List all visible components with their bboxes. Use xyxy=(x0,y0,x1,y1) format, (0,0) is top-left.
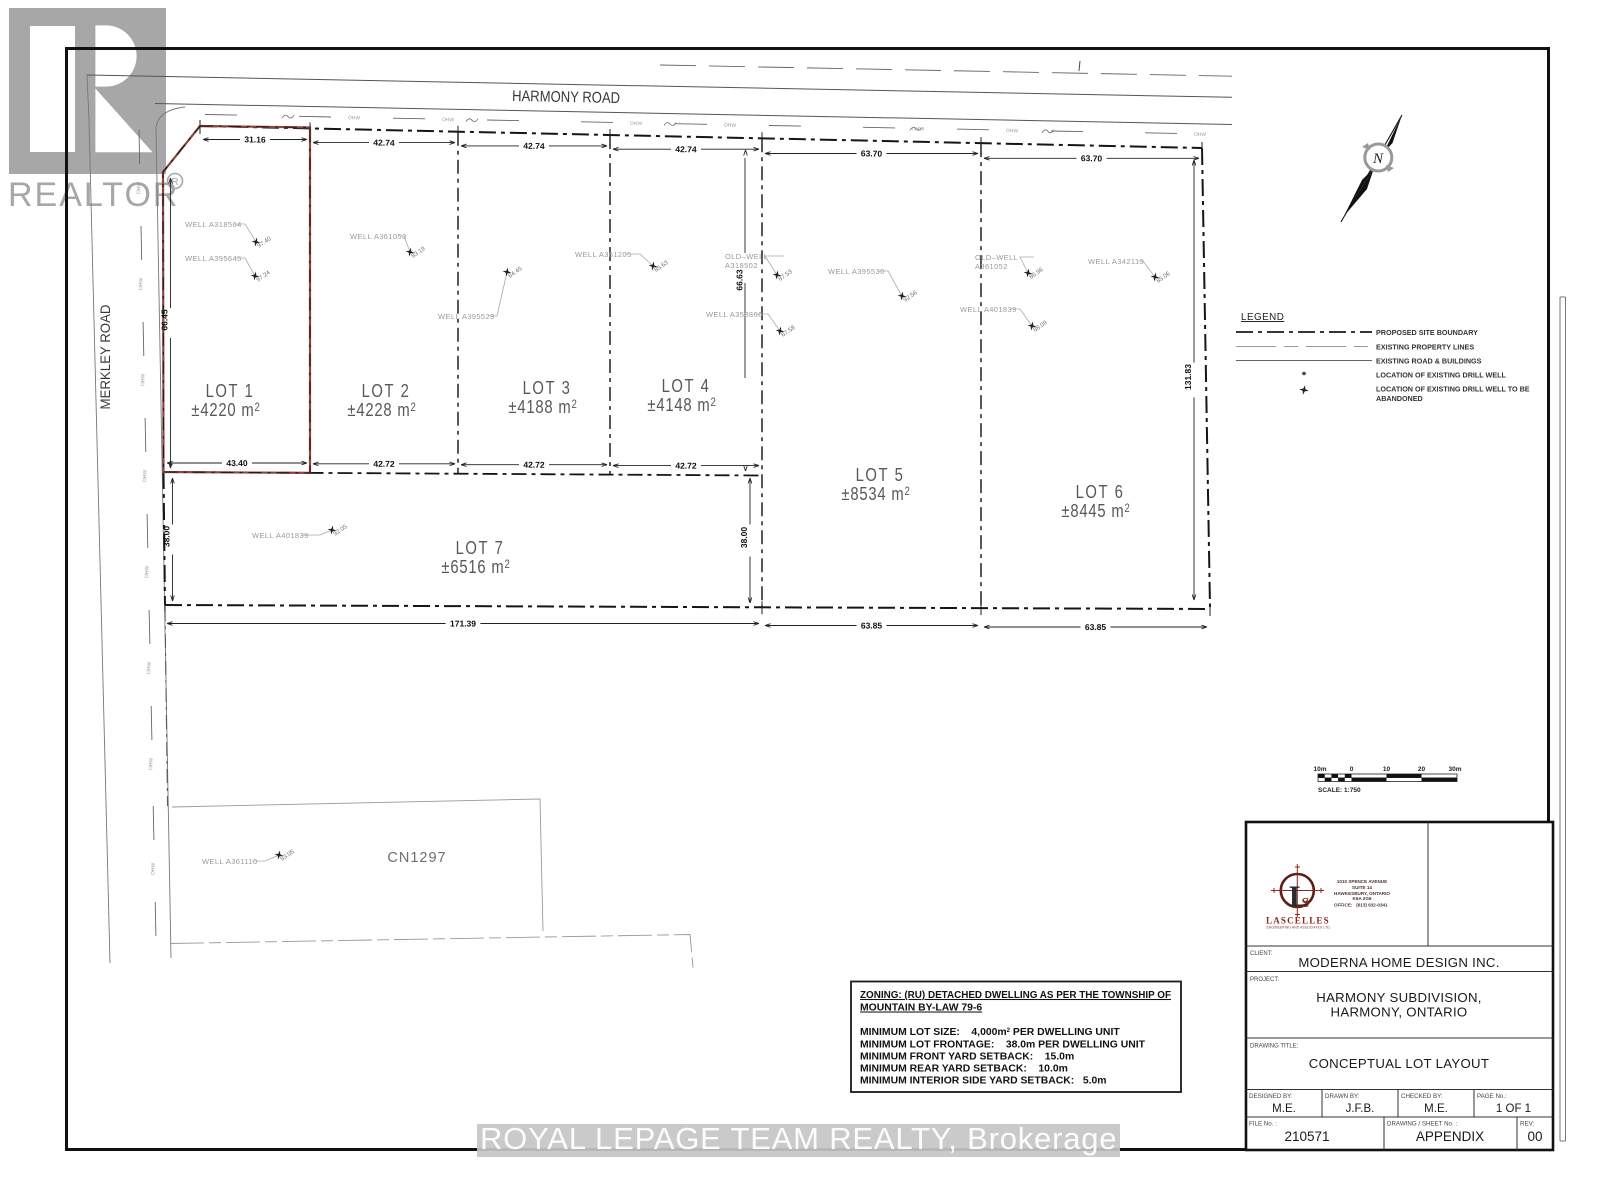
svg-text:WELL A395645: WELL A395645 xyxy=(185,254,242,263)
svg-text:LOT 5: LOT 5 xyxy=(856,464,905,485)
svg-text:EXISTING ROAD & BUILDINGS: EXISTING ROAD & BUILDINGS xyxy=(1376,357,1482,366)
svg-text:WELL A358866: WELL A358866 xyxy=(706,310,763,319)
svg-text:APPENDIX: APPENDIX xyxy=(1416,1129,1484,1144)
svg-text:WELL A318564: WELL A318564 xyxy=(185,220,242,229)
svg-text:REV:: REV: xyxy=(1520,1121,1534,1128)
svg-text:31.16: 31.16 xyxy=(244,134,266,144)
svg-text:±4220 m2: ±4220 m2 xyxy=(191,399,260,420)
svg-text:OHW: OHW xyxy=(442,117,455,123)
svg-text:N: N xyxy=(1372,151,1384,167)
svg-text:WELL A342113: WELL A342113 xyxy=(1088,257,1144,266)
svg-text:00: 00 xyxy=(1527,1129,1542,1144)
svg-text:OHW: OHW xyxy=(1006,128,1019,134)
svg-text:S: S xyxy=(1302,896,1310,911)
svg-text:HARMONY ROAD: HARMONY ROAD xyxy=(512,88,620,107)
svg-text:ZONING: (RU) DETACHED DWELLING: ZONING: (RU) DETACHED DWELLING AS PER TH… xyxy=(860,990,1171,1001)
svg-text:M.E.: M.E. xyxy=(1272,1103,1296,1115)
svg-text:HARMONY, ONTARIO: HARMONY, ONTARIO xyxy=(1331,1005,1468,1020)
svg-text:±8534 m2: ±8534 m2 xyxy=(841,483,910,504)
svg-text:±4188 m2: ±4188 m2 xyxy=(508,396,577,417)
svg-text:OHW: OHW xyxy=(148,757,154,770)
svg-text:DRAWN BY:: DRAWN BY: xyxy=(1325,1093,1360,1100)
svg-text:±4228 m2: ±4228 m2 xyxy=(347,399,416,420)
svg-text:MERKLEY ROAD: MERKLEY ROAD xyxy=(98,304,113,409)
svg-text:DRAWING / SHEET No. :: DRAWING / SHEET No. : xyxy=(1387,1121,1457,1128)
svg-text:DRAWING TITLE:: DRAWING TITLE: xyxy=(1250,1044,1299,1050)
svg-text:63.70: 63.70 xyxy=(1081,153,1103,163)
svg-text:MINIMUM REAR YARD SETBACK:: MINIMUM REAR YARD SETBACK: 10.0m xyxy=(860,1064,1068,1075)
svg-text:1 OF 1: 1 OF 1 xyxy=(1496,1103,1531,1115)
svg-text:A361052: A361052 xyxy=(975,262,1008,271)
svg-text:PROPOSED SITE BOUNDARY: PROPOSED SITE BOUNDARY xyxy=(1376,328,1478,337)
svg-text:42.74: 42.74 xyxy=(675,144,697,154)
svg-text:MINIMUM LOT SIZE: 4,000m2 P: MINIMUM LOT SIZE: 4,000m2 PER DWELLING U… xyxy=(860,1027,1120,1038)
svg-text:LOT 7: LOT 7 xyxy=(456,537,505,558)
svg-text:131.83: 131.83 xyxy=(1183,364,1193,390)
svg-text:42.72: 42.72 xyxy=(373,459,395,469)
svg-text:OHW: OHW xyxy=(150,862,156,875)
svg-text:WELL A361053: WELL A361053 xyxy=(350,232,407,241)
svg-text:REALTOR: REALTOR xyxy=(8,176,179,214)
svg-text:42.72: 42.72 xyxy=(675,461,697,471)
svg-text:30m: 30m xyxy=(1448,766,1461,773)
svg-text:OHW: OHW xyxy=(912,126,925,132)
svg-text:OHW: OHW xyxy=(138,277,144,290)
svg-text:SCALE: 1:750: SCALE: 1:750 xyxy=(1318,787,1361,794)
svg-text:171.39: 171.39 xyxy=(450,618,476,628)
svg-text:38.00: 38.00 xyxy=(162,526,172,548)
svg-text:WELL A395530: WELL A395530 xyxy=(828,267,885,276)
svg-text:1010 SPENCE AVENUE: 1010 SPENCE AVENUE xyxy=(1337,879,1387,884)
svg-text:OHW: OHW xyxy=(144,565,150,578)
svg-text:LOT 6: LOT 6 xyxy=(1076,481,1125,502)
svg-text:SUITE 14: SUITE 14 xyxy=(1352,885,1372,890)
svg-text:63.85: 63.85 xyxy=(1085,622,1107,632)
svg-text:63.85: 63.85 xyxy=(861,620,883,630)
svg-text:63.70: 63.70 xyxy=(861,148,883,158)
svg-text:±8445 m2: ±8445 m2 xyxy=(1061,500,1130,521)
svg-text:±4148 m2: ±4148 m2 xyxy=(647,394,716,415)
svg-text:66.63: 66.63 xyxy=(735,269,745,291)
svg-text:42.72: 42.72 xyxy=(523,460,545,470)
svg-text:J.F.B.: J.F.B. xyxy=(1346,1103,1375,1115)
svg-text:MINIMUM INTERIOR SIDE YARD SET: MINIMUM INTERIOR SIDE YARD SETBACK: 5.0m xyxy=(860,1076,1107,1087)
svg-text:20: 20 xyxy=(1418,766,1426,773)
svg-text:10: 10 xyxy=(1383,766,1391,773)
svg-text:WELL A361205: WELL A361205 xyxy=(575,250,632,259)
svg-text:FILE No. :: FILE No. : xyxy=(1249,1121,1277,1128)
svg-text:WELL A401839: WELL A401839 xyxy=(960,305,1017,314)
svg-text:PAGE No.:: PAGE No.: xyxy=(1477,1093,1507,1100)
svg-text:OHW: OHW xyxy=(140,373,146,386)
svg-text:OFFICE: (613) 632-0341: OFFICE: (613) 632-0341 xyxy=(1334,903,1388,908)
svg-text:WELL A401839: WELL A401839 xyxy=(252,531,309,540)
svg-text:OHW: OHW xyxy=(146,661,152,674)
svg-text:ROYAL LEPAGE TEAM REALTY, Brok: ROYAL LEPAGE TEAM REALTY, Brokerage xyxy=(480,1121,1117,1156)
svg-text:LASCELLES: LASCELLES xyxy=(1266,916,1330,926)
svg-text:CHECKED BY:: CHECKED BY: xyxy=(1401,1093,1443,1100)
svg-text:OHW: OHW xyxy=(136,181,142,194)
svg-text:0: 0 xyxy=(1350,766,1354,773)
svg-text:MOUNTAIN BY-LAW 79-6: MOUNTAIN BY-LAW 79-6 xyxy=(860,1003,982,1014)
svg-text:LEGEND: LEGEND xyxy=(1241,312,1284,323)
svg-text:OLD–WELL: OLD–WELL xyxy=(725,252,768,261)
svg-text:LOT 3: LOT 3 xyxy=(523,377,572,398)
svg-text:OHW: OHW xyxy=(348,115,361,121)
svg-text:42.74: 42.74 xyxy=(523,141,545,151)
svg-text:CLIENT:: CLIENT: xyxy=(1250,951,1273,957)
svg-text:WELL A361110: WELL A361110 xyxy=(202,857,258,866)
svg-text:ENGINEERING AND ASSOCIATES LTD: ENGINEERING AND ASSOCIATES LTD. xyxy=(1267,926,1331,930)
svg-text:EXISTING PROPERTY LINES: EXISTING PROPERTY LINES xyxy=(1376,343,1474,352)
svg-text:M.E.: M.E. xyxy=(1424,1103,1448,1115)
svg-text:HARMONY SUBDIVISION,: HARMONY SUBDIVISION, xyxy=(1316,990,1482,1005)
svg-text:MODERNA HOME DESIGN INC.: MODERNA HOME DESIGN INC. xyxy=(1298,955,1499,970)
svg-text:10m: 10m xyxy=(1313,766,1326,773)
svg-text:38.00: 38.00 xyxy=(739,527,749,549)
svg-text:MINIMUM FRONT YARD SETBACK:: MINIMUM FRONT YARD SETBACK: 15.0m xyxy=(860,1052,1074,1063)
svg-text:ABANDONED: ABANDONED xyxy=(1376,394,1423,403)
svg-text:R: R xyxy=(171,177,178,188)
svg-text:43.40: 43.40 xyxy=(226,458,248,468)
svg-text:CN1297: CN1297 xyxy=(387,850,446,866)
svg-text:A318502: A318502 xyxy=(725,261,758,270)
svg-text:MINIMUM LOT FRONTAGE: 38.0m: MINIMUM LOT FRONTAGE: 38.0m PER DWELLING… xyxy=(860,1040,1146,1051)
svg-text:WELL A395529: WELL A395529 xyxy=(438,312,495,321)
svg-text:DESIGNED BY:: DESIGNED BY: xyxy=(1249,1093,1293,1100)
svg-text:LOT 2: LOT 2 xyxy=(362,380,411,401)
svg-text:LOCATION OF EXISTING DRILL WEL: LOCATION OF EXISTING DRILL WELL TO BE xyxy=(1376,385,1530,394)
svg-text:PROJECT:: PROJECT: xyxy=(1250,977,1279,983)
svg-text:OHW: OHW xyxy=(630,121,643,127)
svg-text:CONCEPTUAL LOT LAYOUT: CONCEPTUAL LOT LAYOUT xyxy=(1309,1056,1489,1071)
svg-text:K6A 2G6: K6A 2G6 xyxy=(1353,896,1372,901)
svg-text:OHW: OHW xyxy=(1194,132,1207,138)
svg-text:66.45: 66.45 xyxy=(160,309,170,331)
svg-text:42.74: 42.74 xyxy=(373,137,395,147)
svg-text:OHW: OHW xyxy=(724,123,737,129)
svg-text:LOT 4: LOT 4 xyxy=(662,375,711,396)
svg-text:LOT 1: LOT 1 xyxy=(206,380,255,401)
svg-text:210571: 210571 xyxy=(1284,1129,1329,1144)
svg-text:LOCATION OF EXISTING DRILL WEL: LOCATION OF EXISTING DRILL WELL xyxy=(1376,371,1507,380)
svg-text:±6516 m2: ±6516 m2 xyxy=(441,556,510,577)
svg-text:OLD–WELL: OLD–WELL xyxy=(975,253,1018,262)
svg-text:OHW: OHW xyxy=(142,469,148,482)
